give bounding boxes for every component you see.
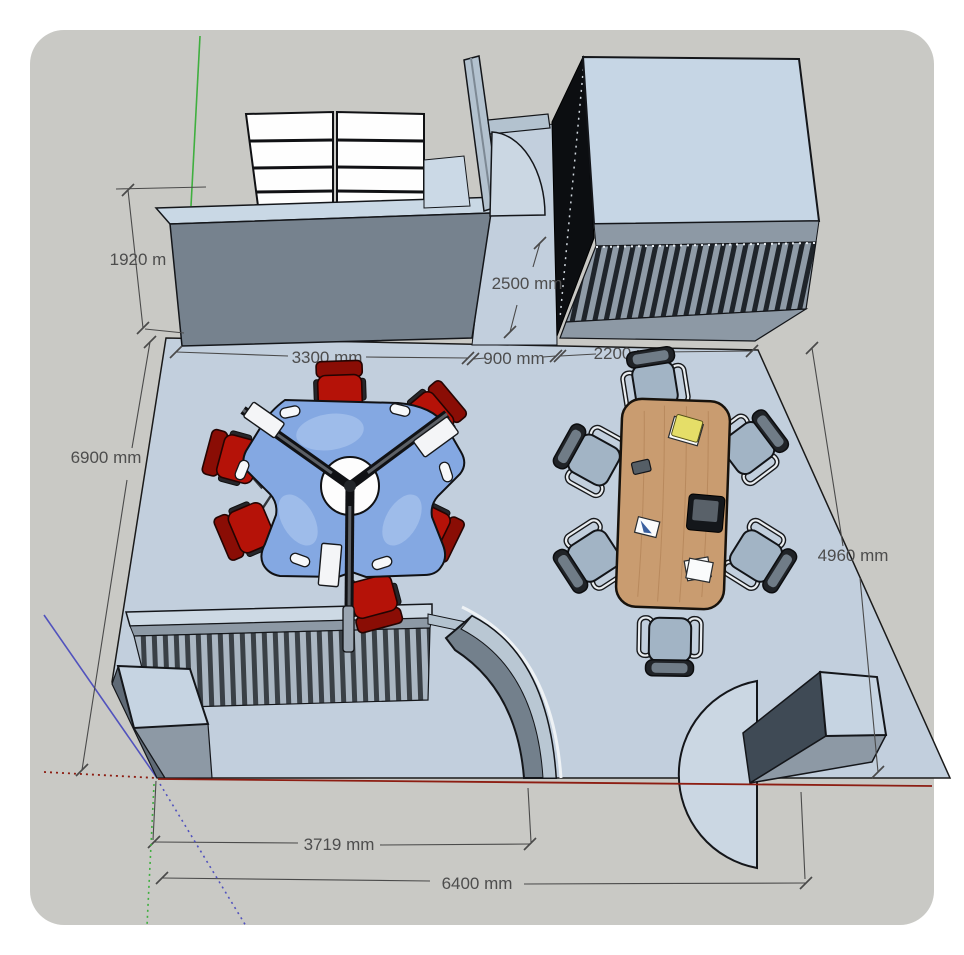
storage-cabinet bbox=[552, 57, 819, 341]
top-wall-inner-face bbox=[170, 213, 491, 346]
top-wall bbox=[156, 197, 499, 346]
paper-stack bbox=[683, 556, 713, 582]
laptop bbox=[686, 494, 725, 533]
dimension-label-6900: 6900 mm bbox=[71, 448, 142, 467]
desk-pole-foot bbox=[343, 606, 354, 652]
desk-screen-board bbox=[318, 543, 342, 587]
cabinet-top-face bbox=[583, 57, 819, 224]
dimension-label-4960: 4960 mm bbox=[818, 546, 889, 565]
dimension-label-3719: 3719 mm bbox=[304, 835, 375, 854]
dimension-label-6400: 6400 mm bbox=[442, 874, 513, 893]
dimension-label-900: 900 mm bbox=[483, 349, 544, 368]
dimension-label-1920: 1920 m bbox=[110, 250, 167, 269]
conference-table bbox=[615, 398, 730, 610]
dimension-label-2500: 2500 mm bbox=[492, 274, 563, 293]
sketchup-floorplan-render: 1920 m 2500 mm 3300 mm 900 mm 2200 mm 69… bbox=[0, 0, 964, 955]
back-wall-piece bbox=[424, 156, 470, 208]
wall-block-top-face bbox=[820, 672, 886, 736]
